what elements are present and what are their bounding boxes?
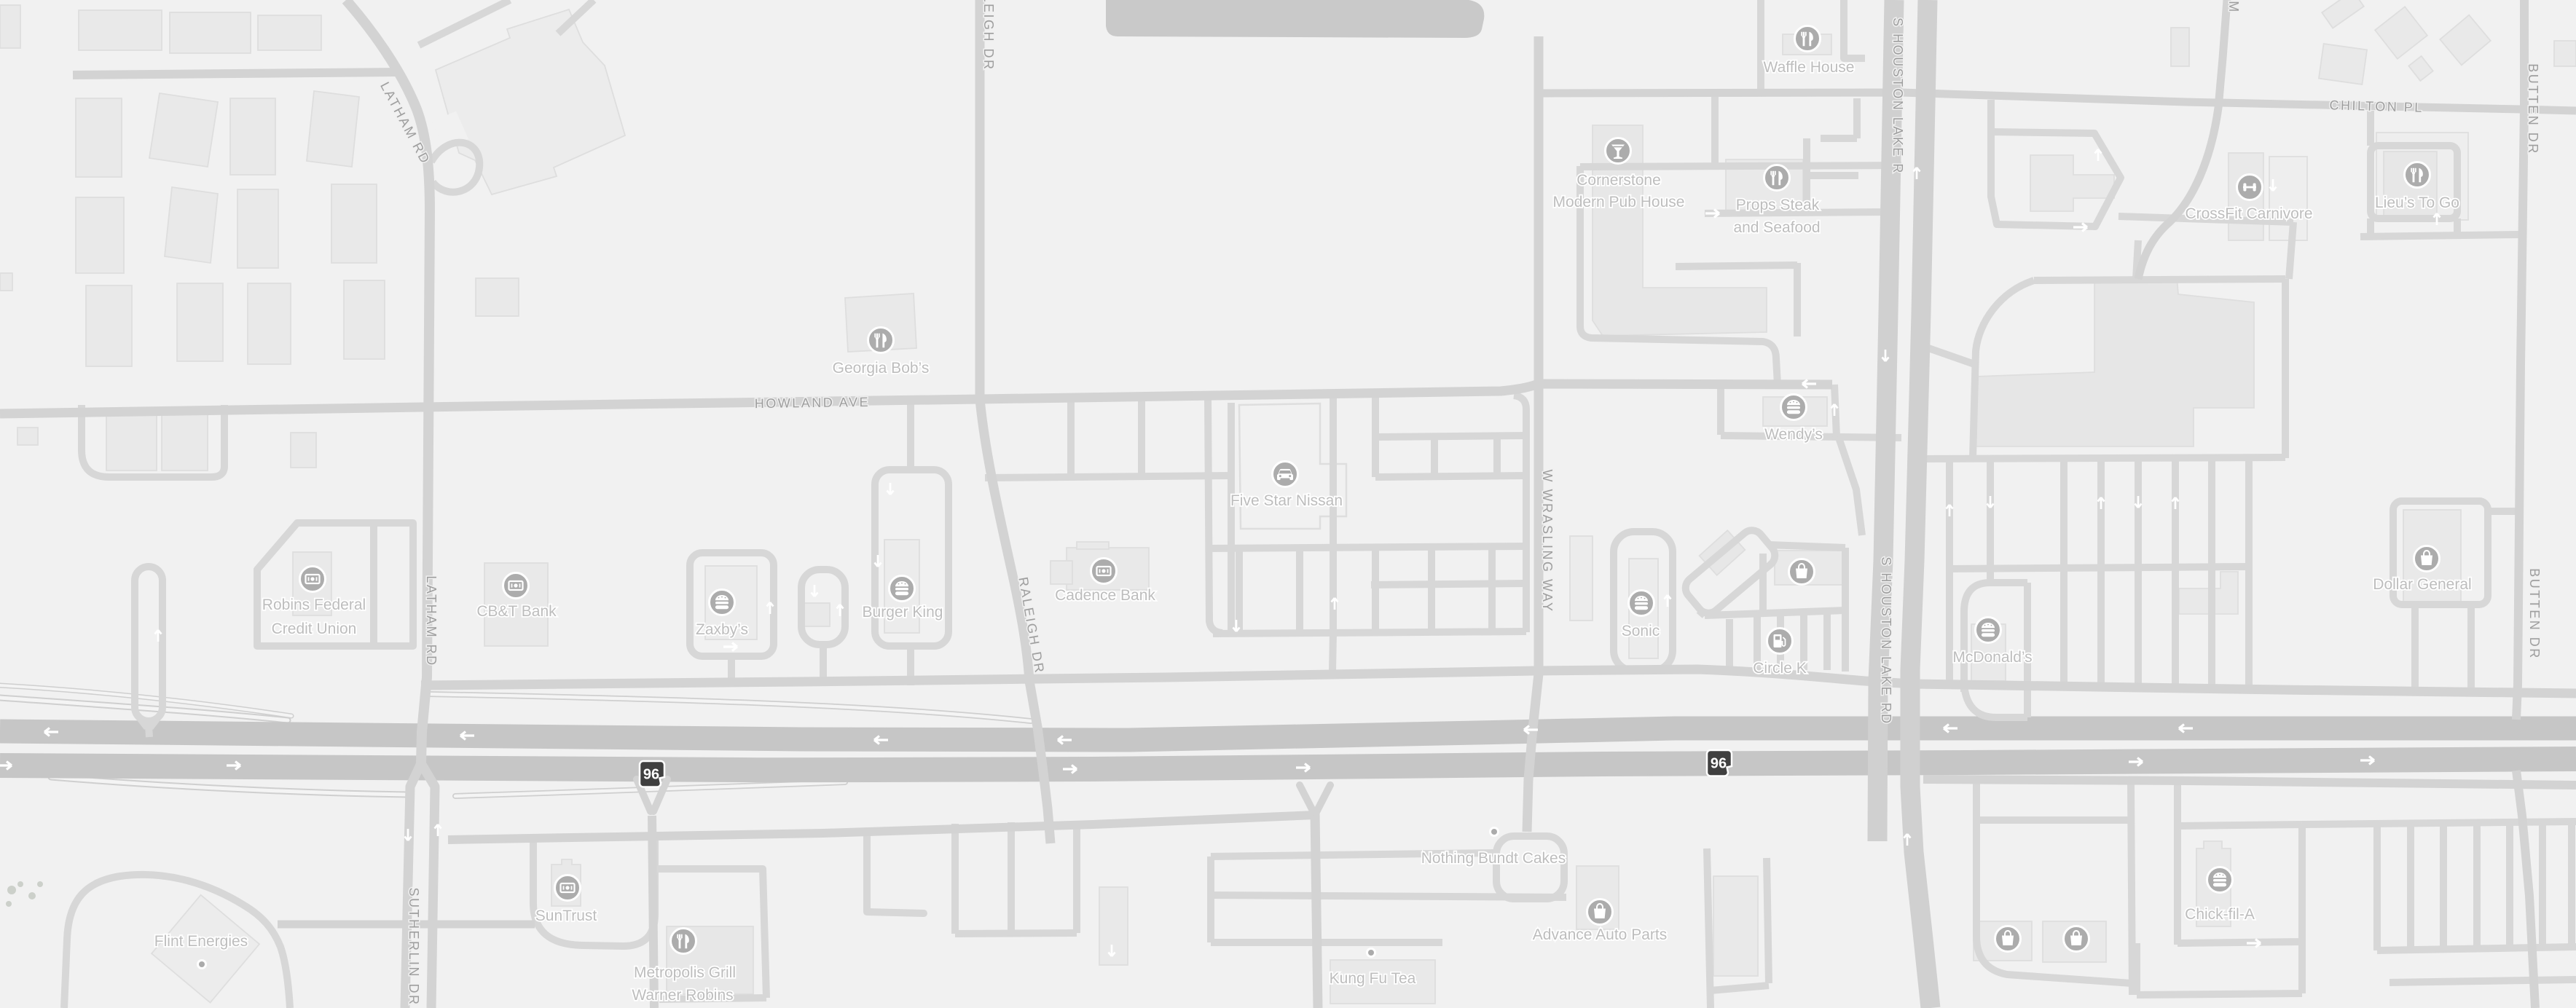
svg-text:Cadence Bank: Cadence Bank bbox=[1055, 587, 1155, 604]
svg-text:Lieu’s To Go: Lieu’s To Go bbox=[2375, 194, 2459, 211]
svg-text:S HOUSTON LAKE R: S HOUSTON LAKE R bbox=[1890, 17, 1905, 175]
svg-text:Metropolis Grill: Metropolis Grill bbox=[634, 964, 736, 981]
svg-text:HOWLAND AVE: HOWLAND AVE bbox=[755, 395, 870, 411]
svg-text:RALEIGH DR: RALEIGH DR bbox=[981, 0, 996, 71]
svg-text:LATHAM RD: LATHAM RD bbox=[424, 575, 439, 666]
svg-text:Burger King: Burger King bbox=[863, 604, 943, 621]
svg-text:Robins Federal: Robins Federal bbox=[262, 596, 366, 613]
svg-text:Advance Auto Parts: Advance Auto Parts bbox=[1533, 926, 1667, 943]
svg-text:Cornerstone: Cornerstone bbox=[1576, 172, 1661, 189]
svg-text:Five Star Nissan: Five Star Nissan bbox=[1230, 492, 1343, 509]
svg-text:Kung Fu Tea: Kung Fu Tea bbox=[1330, 970, 1416, 987]
svg-text:Circle K: Circle K bbox=[1753, 660, 1807, 677]
svg-text:Props Steak: Props Steak bbox=[1736, 197, 1820, 213]
svg-text:Sonic: Sonic bbox=[1622, 623, 1660, 639]
svg-text:CHILTON PL: CHILTON PL bbox=[2329, 98, 2424, 115]
svg-text:Credit Union: Credit Union bbox=[272, 621, 357, 637]
svg-text:W WRASLING WAY: W WRASLING WAY bbox=[1540, 470, 1555, 613]
svg-text:Warner Robins: Warner Robins bbox=[632, 987, 733, 1004]
svg-text:SunTrust: SunTrust bbox=[535, 907, 597, 924]
svg-text:Wendy’s: Wendy’s bbox=[1764, 426, 1823, 443]
svg-text:M: M bbox=[2226, 1, 2241, 14]
svg-text:Flint Energies: Flint Energies bbox=[154, 933, 248, 950]
svg-text:CB&T Bank: CB&T Bank bbox=[476, 603, 557, 620]
svg-text:Waffle House: Waffle House bbox=[1764, 59, 1855, 76]
svg-text:SUTHERLIN DR: SUTHERLIN DR bbox=[407, 887, 421, 1006]
svg-text:Dollar General: Dollar General bbox=[2373, 576, 2471, 593]
svg-text:Chick-fil-A: Chick-fil-A bbox=[2185, 906, 2255, 923]
svg-text:and Seafood: and Seafood bbox=[1733, 219, 1820, 236]
svg-text:Georgia Bob’s: Georgia Bob’s bbox=[833, 360, 930, 377]
svg-text:McDonald’s: McDonald’s bbox=[1952, 649, 2032, 666]
svg-text:S HOUSTON LAKE RD: S HOUSTON LAKE RD bbox=[1879, 556, 1893, 725]
svg-text:Zaxby’s: Zaxby’s bbox=[696, 621, 748, 638]
svg-text:BUTTEN DR: BUTTEN DR bbox=[2526, 63, 2540, 155]
svg-text:Modern Pub House: Modern Pub House bbox=[1553, 194, 1685, 210]
svg-text:Nothing Bundt Cakes: Nothing Bundt Cakes bbox=[1421, 850, 1566, 867]
svg-text:CrossFit Carnivore: CrossFit Carnivore bbox=[2185, 205, 2312, 222]
svg-text:BUTTEN DR: BUTTEN DR bbox=[2527, 568, 2542, 660]
